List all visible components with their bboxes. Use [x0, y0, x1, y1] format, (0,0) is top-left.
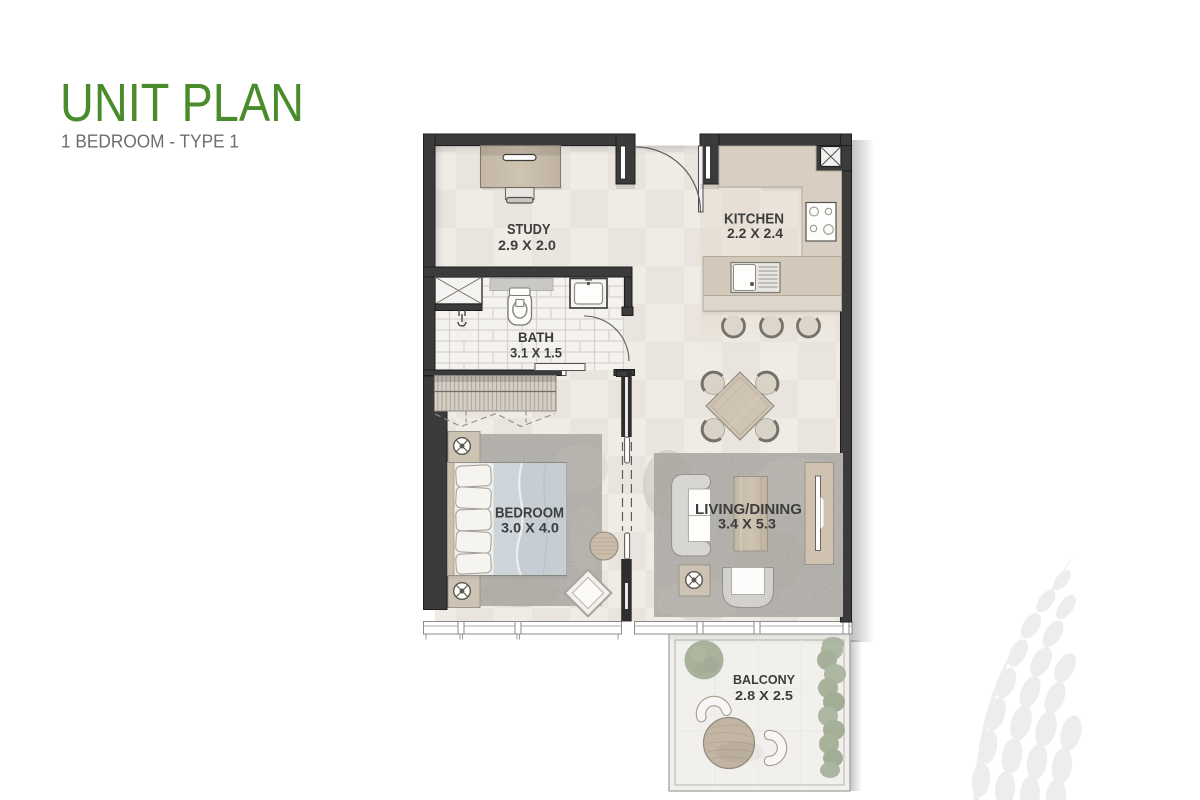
svg-text:1 BEDROOM - TYPE 1: 1 BEDROOM - TYPE 1: [61, 131, 239, 152]
svg-text:2.9 X 2.0: 2.9 X 2.0: [498, 237, 556, 253]
svg-text:3.4 X 5.3: 3.4 X 5.3: [718, 516, 776, 532]
svg-text:2.8 X 2.5: 2.8 X 2.5: [735, 689, 793, 703]
svg-text:UNIT PLAN: UNIT PLAN: [60, 73, 304, 133]
svg-text:3.1 X 1.5: 3.1 X 1.5: [510, 346, 562, 361]
svg-text:BALCONY: BALCONY: [733, 673, 796, 687]
svg-text:BATH: BATH: [518, 330, 554, 345]
svg-text:2.2 X 2.4: 2.2 X 2.4: [727, 225, 783, 241]
svg-text:3.0 X 4.0: 3.0 X 4.0: [501, 520, 559, 536]
svg-text:STUDY: STUDY: [507, 222, 551, 238]
